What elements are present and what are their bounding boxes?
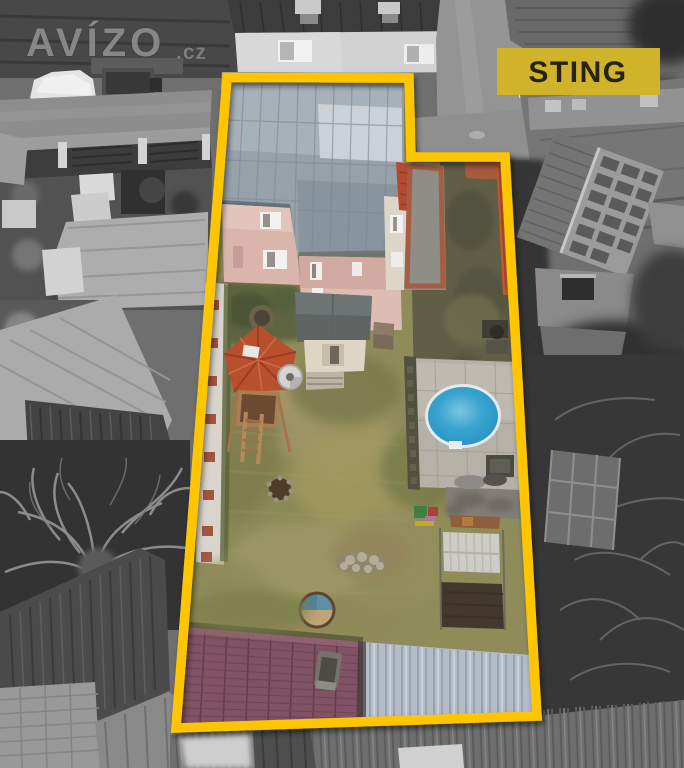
svg-text:.cz: .cz: [176, 41, 207, 64]
svg-text:STING: STING: [528, 56, 627, 89]
svg-text:AVÍZO: AVÍZO: [26, 20, 165, 65]
